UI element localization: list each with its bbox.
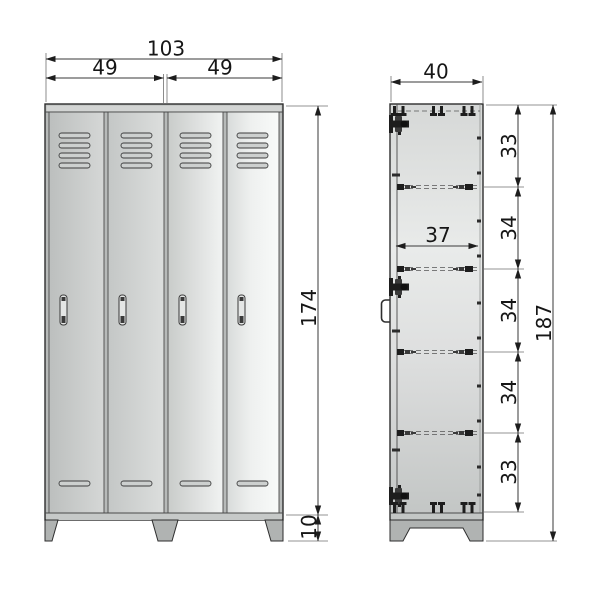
locker-door-1 <box>49 112 104 513</box>
vent-slot <box>237 143 268 148</box>
screw-mark <box>392 330 400 333</box>
vent-slot <box>237 153 268 158</box>
vent-slot <box>237 481 268 486</box>
front-leg-left <box>45 520 58 541</box>
vent-slot <box>121 153 152 158</box>
dim-label-depth: 40 <box>423 60 448 84</box>
dim-label-compartment-5: 33 <box>497 459 521 484</box>
locker-door-3 <box>168 112 223 513</box>
dim-label-total-width: 103 <box>147 37 185 61</box>
dim-label-cabinet-height: 174 <box>297 289 321 327</box>
bottom-bolts <box>391 502 476 513</box>
dim-label-left-section: 49 <box>92 56 117 80</box>
locker-dimension-drawing: 103 49 49 174 10 40 37 33 34 34 <box>0 0 600 600</box>
vent-slot <box>59 133 90 138</box>
door-handle-4 <box>238 295 245 325</box>
vent-slot <box>121 481 152 486</box>
dim-label-total-height: 187 <box>532 304 556 342</box>
locker-door-4 <box>227 112 279 513</box>
vent-slot <box>180 163 211 168</box>
vent-slot <box>237 133 268 138</box>
vent-slot <box>59 143 90 148</box>
shelf-pin-mark <box>477 385 481 388</box>
locker-door-2 <box>108 112 164 513</box>
vent-slot <box>237 163 268 168</box>
front-legs <box>45 520 283 541</box>
side-legs <box>390 520 483 541</box>
door-handle-3 <box>179 295 186 325</box>
vent-slot <box>180 143 211 148</box>
technical-drawing-canvas: 103 49 49 174 10 40 37 33 34 34 <box>0 0 600 600</box>
vent-slot <box>59 153 90 158</box>
vent-slot <box>180 133 211 138</box>
front-leg-right <box>265 520 283 541</box>
vent-slot <box>59 163 90 168</box>
shelf-pin-mark <box>477 494 481 497</box>
dim-label-compartment-4: 34 <box>497 380 521 405</box>
side-bottom-rail <box>391 513 482 520</box>
dim-label-inner-depth: 37 <box>425 223 450 247</box>
dim-label-compartment-2: 34 <box>497 215 521 240</box>
front-view <box>45 104 283 541</box>
dim-label-compartment-3: 34 <box>497 298 521 323</box>
dim-label-right-section: 49 <box>207 56 232 80</box>
vent-slot <box>180 153 211 158</box>
screw-mark <box>392 449 400 452</box>
shelf-pin-mark <box>477 337 481 340</box>
side-view <box>382 104 484 541</box>
vent-slot <box>180 481 211 486</box>
vent-slot <box>59 481 90 486</box>
screw-mark <box>392 174 400 177</box>
dim-label-leg-height: 10 <box>297 514 321 539</box>
shelf-pin-mark <box>477 220 481 223</box>
vent-slot <box>121 143 152 148</box>
shelf-pin-mark <box>477 255 481 258</box>
door-handle-1 <box>60 295 67 325</box>
handle-side-profile <box>382 300 391 322</box>
shelf-pin-mark <box>477 420 481 423</box>
shelf-pin-mark <box>477 466 481 469</box>
vent-slot <box>121 133 152 138</box>
door-handle-2 <box>119 295 126 325</box>
shelf-pin-mark <box>477 172 481 175</box>
shelf-pin-mark <box>477 302 481 305</box>
front-top-rail <box>47 106 282 113</box>
front-leg-middle <box>152 520 178 541</box>
front-bottom-rail <box>46 513 282 520</box>
dim-label-compartment-1: 33 <box>497 133 521 158</box>
top-bolts <box>391 106 476 116</box>
shelf-pin-mark <box>477 137 481 140</box>
vent-slot <box>121 163 152 168</box>
side-panel <box>390 104 483 520</box>
